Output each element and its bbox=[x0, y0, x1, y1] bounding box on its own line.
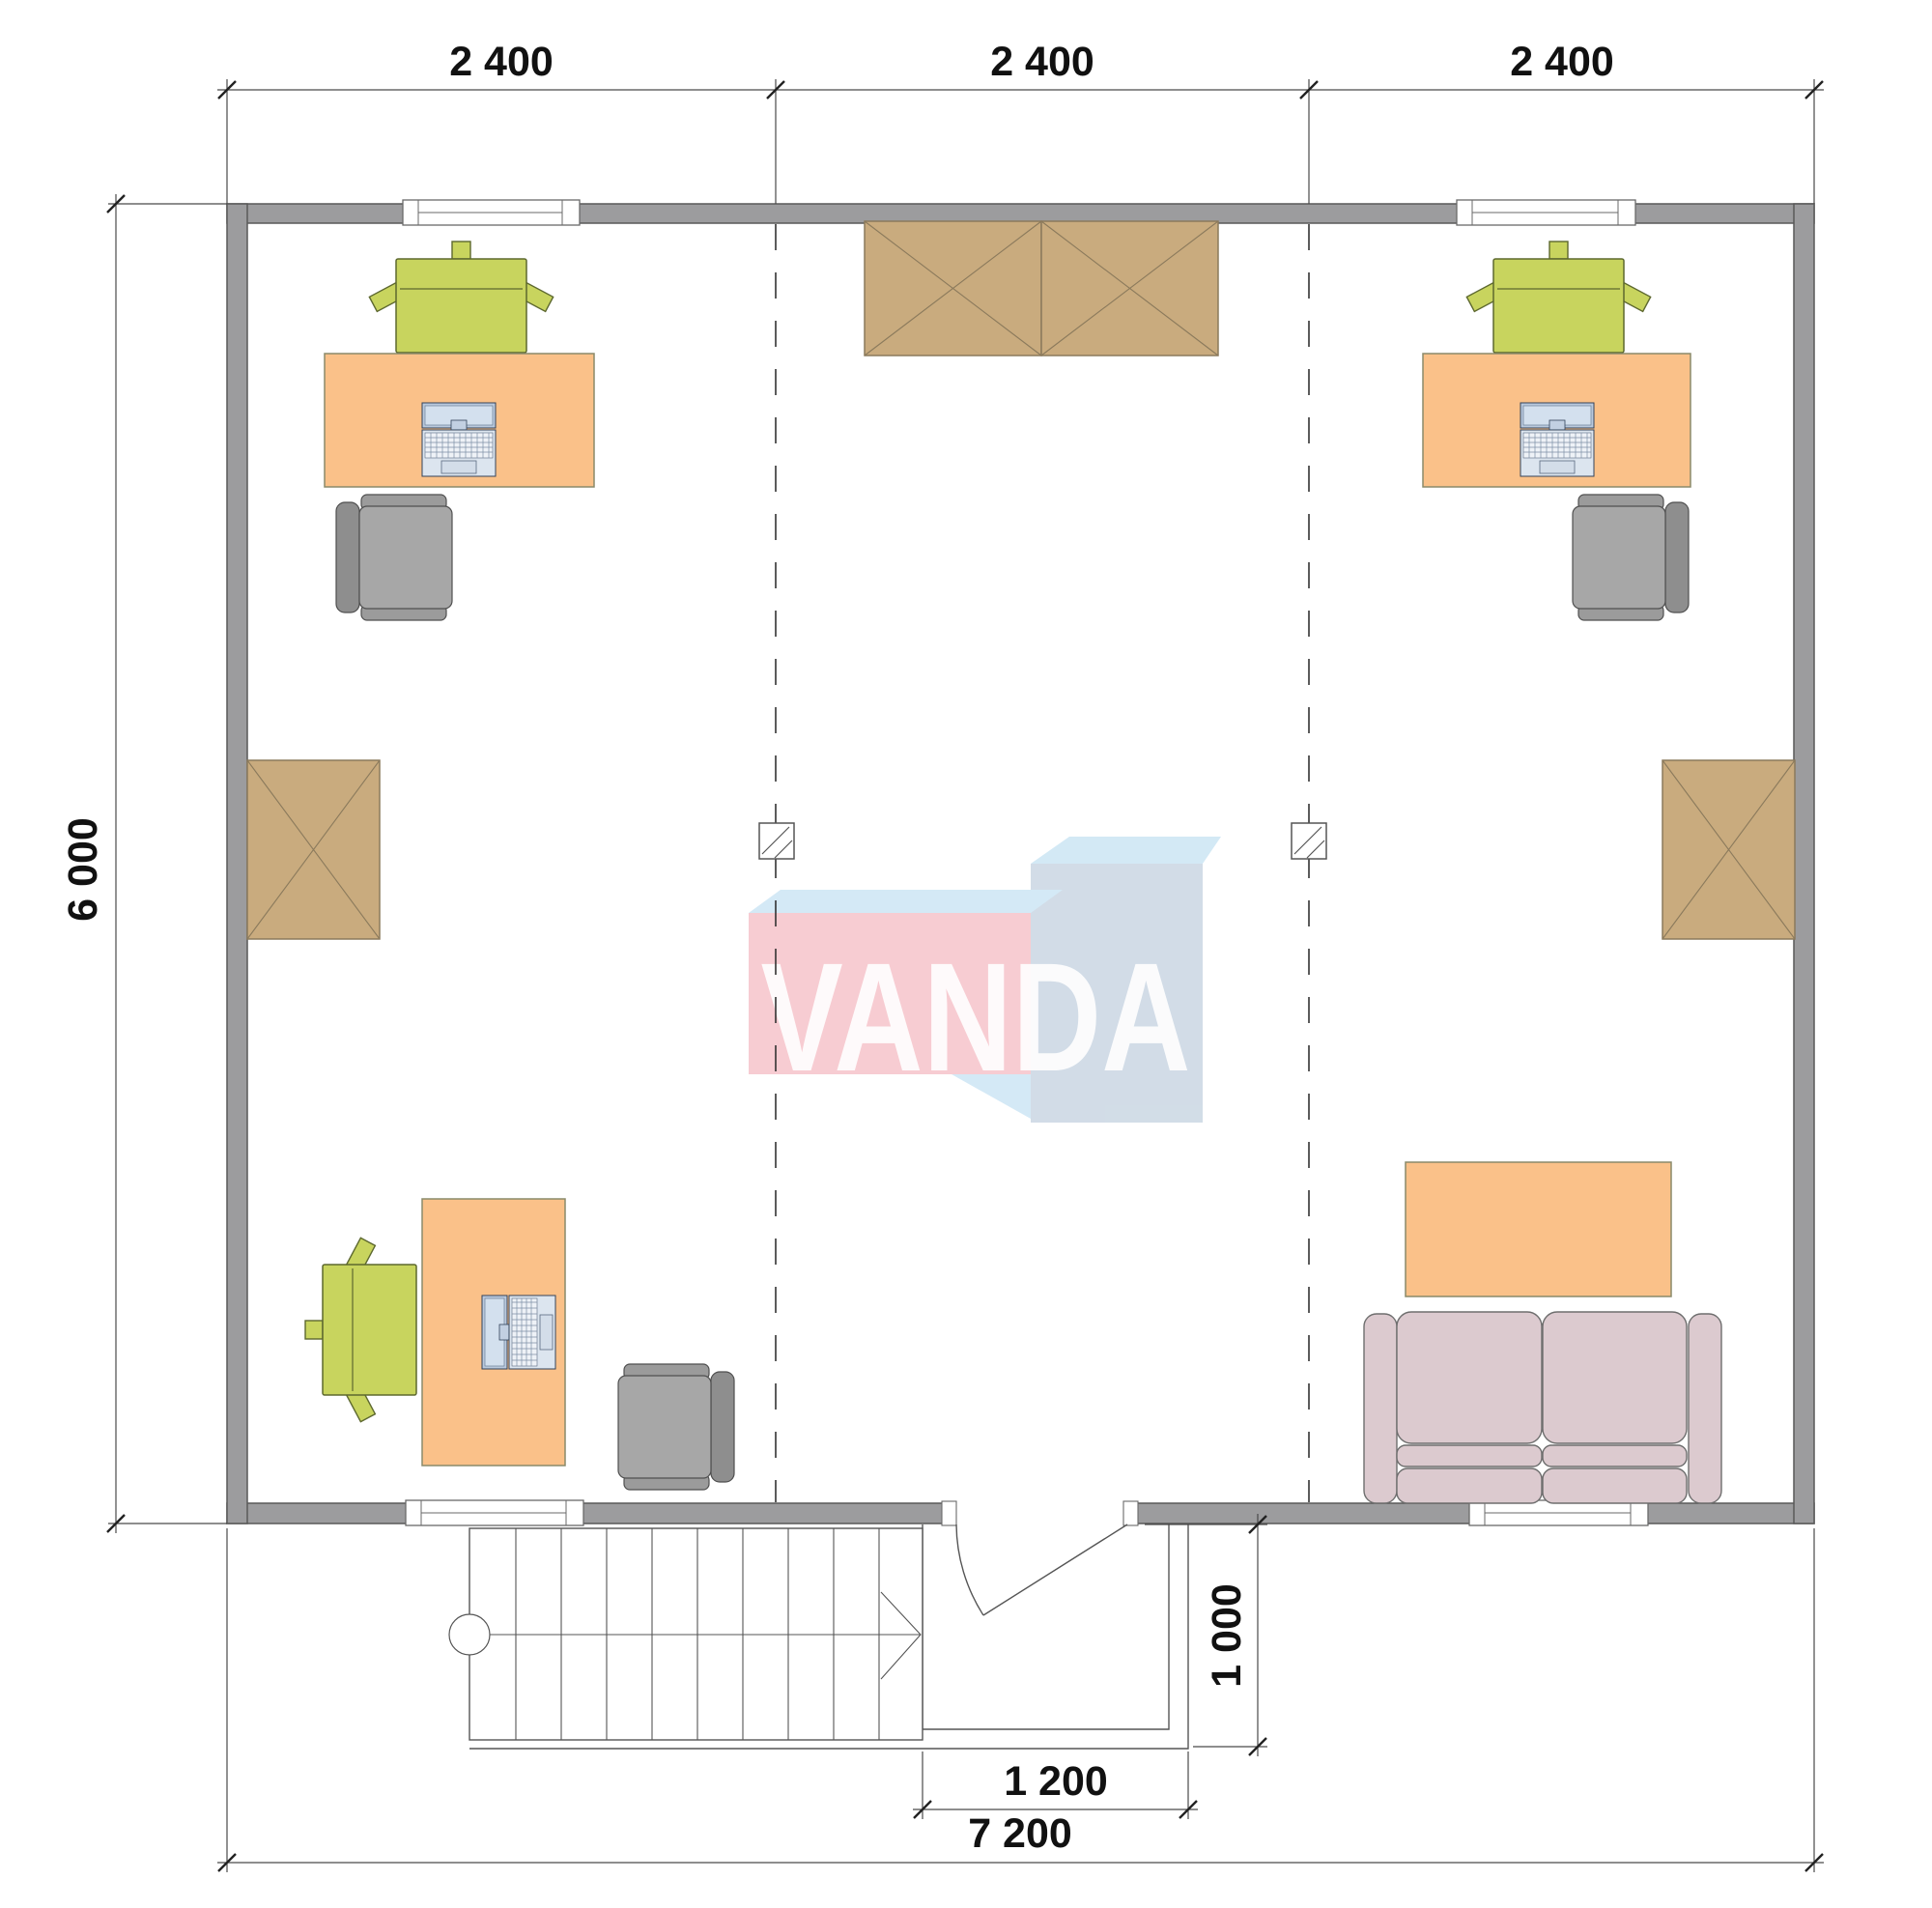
wall-left bbox=[227, 204, 247, 1524]
dim-label-top-2: 2 400 bbox=[990, 39, 1094, 85]
vanda-watermark-logo: VANDA bbox=[749, 837, 1221, 1123]
dimension-left: 6 000 bbox=[60, 194, 227, 1533]
laptop-icon bbox=[1520, 403, 1594, 476]
workstation-top-left bbox=[325, 242, 594, 620]
lounge-area bbox=[1364, 1162, 1721, 1503]
watermark-text: VANDA bbox=[761, 930, 1191, 1103]
stair-start-post bbox=[449, 1614, 490, 1655]
dimension-entry-depth: 1 000 bbox=[1145, 1514, 1267, 1756]
door-opening bbox=[942, 1501, 1138, 1525]
task-chair-icon bbox=[1466, 242, 1650, 353]
door-swing-arc bbox=[956, 1524, 983, 1615]
office-chair-icon bbox=[618, 1364, 734, 1490]
wardrobe-right-wall bbox=[1662, 760, 1795, 939]
dim-label-left: 6 000 bbox=[60, 817, 106, 922]
workstation-bottom-left bbox=[305, 1199, 734, 1490]
dim-label-bottom-total: 7 200 bbox=[968, 1810, 1072, 1857]
window-bottom-right bbox=[1469, 1500, 1648, 1525]
window-top-left bbox=[403, 200, 580, 225]
column-symbol-right bbox=[1292, 823, 1326, 859]
logo-blue-top-face bbox=[1031, 837, 1221, 864]
wardrobe-top-right-unit bbox=[1041, 221, 1218, 356]
floor-plan-canvas: VANDA bbox=[0, 0, 1932, 1908]
wardrobe-top-left-unit bbox=[865, 221, 1041, 356]
logo-pink-top-face bbox=[749, 890, 1063, 913]
office-chair-icon bbox=[336, 495, 452, 620]
sofa-icon bbox=[1364, 1312, 1721, 1503]
task-chair-icon bbox=[369, 242, 553, 353]
entry-door bbox=[942, 1501, 1138, 1615]
dimension-top: 2 400 2 400 2 400 bbox=[217, 39, 1824, 204]
dim-label-entry-width: 1 200 bbox=[1004, 1758, 1108, 1805]
door-jamb-left bbox=[942, 1501, 956, 1525]
laptop-icon bbox=[422, 403, 496, 476]
window-top-right bbox=[1457, 200, 1635, 225]
dim-label-entry-depth: 1 000 bbox=[1204, 1583, 1250, 1688]
task-chair-icon bbox=[305, 1238, 416, 1421]
column-symbol-left bbox=[759, 823, 794, 859]
dim-label-top-1: 2 400 bbox=[449, 39, 554, 85]
window-bottom-left bbox=[406, 1500, 583, 1525]
dimension-entry-width: 1 200 bbox=[913, 1751, 1198, 1819]
workstation-top-right bbox=[1423, 242, 1690, 620]
door-jamb-right bbox=[1123, 1501, 1138, 1525]
laptop-icon bbox=[482, 1296, 555, 1369]
wall-right bbox=[1794, 204, 1814, 1524]
coffee-table-icon bbox=[1406, 1162, 1671, 1296]
staircase bbox=[449, 1528, 923, 1740]
dim-label-top-3: 2 400 bbox=[1510, 39, 1614, 85]
dimension-bottom-total: 7 200 bbox=[217, 1528, 1824, 1872]
wardrobe-left-wall bbox=[247, 760, 380, 939]
office-chair-icon bbox=[1573, 495, 1689, 620]
door-leaf bbox=[983, 1524, 1127, 1615]
